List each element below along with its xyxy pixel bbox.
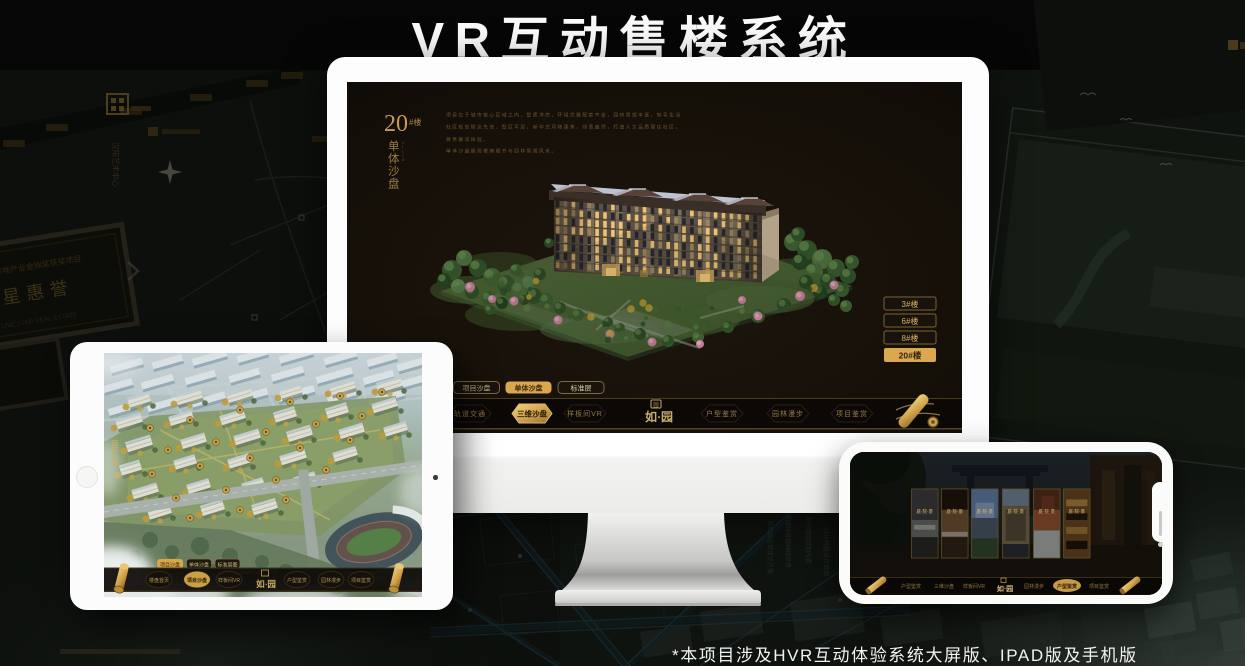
- svg-text:样板间VR: 样板间VR: [218, 577, 240, 584]
- svg-text:如·园: 如·园: [997, 584, 1013, 593]
- svg-text:标准层: 标准层: [571, 384, 592, 393]
- svg-text:绿化种植设计说明: 绿化种植设计说明: [822, 528, 830, 576]
- svg-text:汉阳艺术中心: 汉阳艺术中心: [111, 142, 121, 187]
- svg-text:尊贵奢华体验。: 尊贵奢华体验。: [446, 136, 489, 143]
- svg-text:社区规划理念先进，墅区平层，新中式风格建筑，绿意盎然，打造人: 社区规划理念先进，墅区平层，新中式风格建筑，绿意盎然，打造人文品质居住社区，: [446, 123, 682, 130]
- svg-text:庭·院·景: 庭·院·景: [947, 508, 964, 515]
- svg-text:户型鉴赏: 户型鉴赏: [901, 583, 921, 590]
- svg-text:项目沙盘: 项目沙盘: [160, 561, 180, 568]
- svg-text:中央园林景观轴线示意: 中央园林景观轴线示意: [784, 508, 792, 568]
- svg-text:三维沙盘: 三维沙盘: [934, 583, 954, 590]
- svg-text:户型鉴赏: 户型鉴赏: [706, 409, 738, 418]
- svg-text:宅间组团绿地布置: 宅间组团绿地布置: [804, 516, 812, 564]
- svg-text:庭·院·景: 庭·院·景: [977, 508, 994, 515]
- svg-text:单: 单: [388, 140, 400, 153]
- svg-text:庭·院·景: 庭·院·景: [1069, 508, 1086, 515]
- svg-text:三维沙盘: 三维沙盘: [517, 409, 547, 419]
- svg-text:项目鉴赏: 项目鉴赏: [351, 577, 371, 584]
- svg-text:楼盘首页: 楼盘首页: [149, 577, 169, 584]
- svg-text:轨道交通: 轨道交通: [454, 409, 486, 418]
- svg-text:项目沙盘: 项目沙盘: [187, 577, 207, 584]
- svg-text:20: 20: [384, 111, 408, 137]
- svg-text:庭·院·景: 庭·院·景: [917, 508, 934, 515]
- svg-text:庭·院·景: 庭·院·景: [1039, 508, 1056, 515]
- svg-text:项目位于城市核心区域之内，墅质洋房，环境优雅配套齐全，园林景: 项目位于城市核心区域之内，墅质洋房，环境优雅配套齐全，园林景观丰富，智享生活: [446, 111, 682, 118]
- svg-text:#楼: #楼: [409, 117, 421, 127]
- svg-text:园林漫步: 园林漫步: [1024, 583, 1044, 590]
- svg-text:单体沙盘展现楼座细节与园林景观风采。: 单体沙盘展现楼座细节与园林景观风采。: [446, 147, 558, 154]
- svg-text:项目鉴赏: 项目鉴赏: [836, 409, 868, 418]
- svg-text:项目鉴赏: 项目鉴赏: [1089, 583, 1109, 590]
- svg-text:3#楼: 3#楼: [902, 299, 919, 309]
- svg-text:样板间VR: 样板间VR: [567, 409, 603, 418]
- svg-text:项目沙盘: 项目沙盘: [463, 384, 491, 393]
- svg-text:户型鉴赏: 户型鉴赏: [1056, 583, 1077, 590]
- svg-text:盘: 盘: [388, 177, 400, 191]
- svg-text:单体沙盘: 单体沙盘: [515, 384, 543, 393]
- svg-text:8#楼: 8#楼: [902, 333, 919, 343]
- svg-text:如·园: 如·园: [256, 579, 276, 589]
- svg-text:体: 体: [388, 152, 400, 166]
- svg-text:园林漫步: 园林漫步: [772, 409, 804, 418]
- svg-text:园林漫步: 园林漫步: [321, 577, 341, 584]
- svg-text:户型鉴赏: 户型鉴赏: [287, 577, 307, 584]
- svg-text:园: 园: [653, 402, 659, 409]
- svg-text:6#楼: 6#楼: [902, 316, 919, 326]
- svg-text:如·园: 如·园: [645, 409, 673, 424]
- svg-text:样板间VR: 样板间VR: [963, 583, 985, 590]
- svg-text:标准层图: 标准层图: [217, 561, 237, 568]
- svg-text:单体沙盘: 单体沙盘: [189, 561, 209, 568]
- svg-text:庭·院·景: 庭·院·景: [1008, 508, 1025, 515]
- svg-text:沙: 沙: [388, 165, 400, 178]
- svg-text:20#楼: 20#楼: [899, 351, 922, 361]
